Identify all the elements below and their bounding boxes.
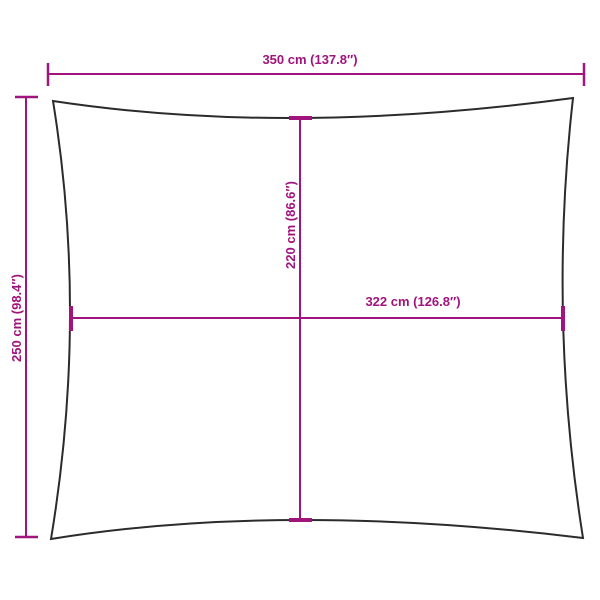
height-dimension-label: 250 cm (98.4″) <box>9 274 25 362</box>
width-dimension-label: 350 cm (137.8″) <box>262 52 357 68</box>
inner-height-dimension-label: 220 cm (86.6″) <box>283 181 299 269</box>
center-width-dimension-line <box>71 306 563 331</box>
inner-width-dimension-label: 322 cm (126.8″) <box>365 294 460 310</box>
product-dimension-diagram: 350 cm (137.8″) 250 cm (98.4″) 220 cm (8… <box>0 0 600 600</box>
diagram-canvas <box>0 0 600 600</box>
